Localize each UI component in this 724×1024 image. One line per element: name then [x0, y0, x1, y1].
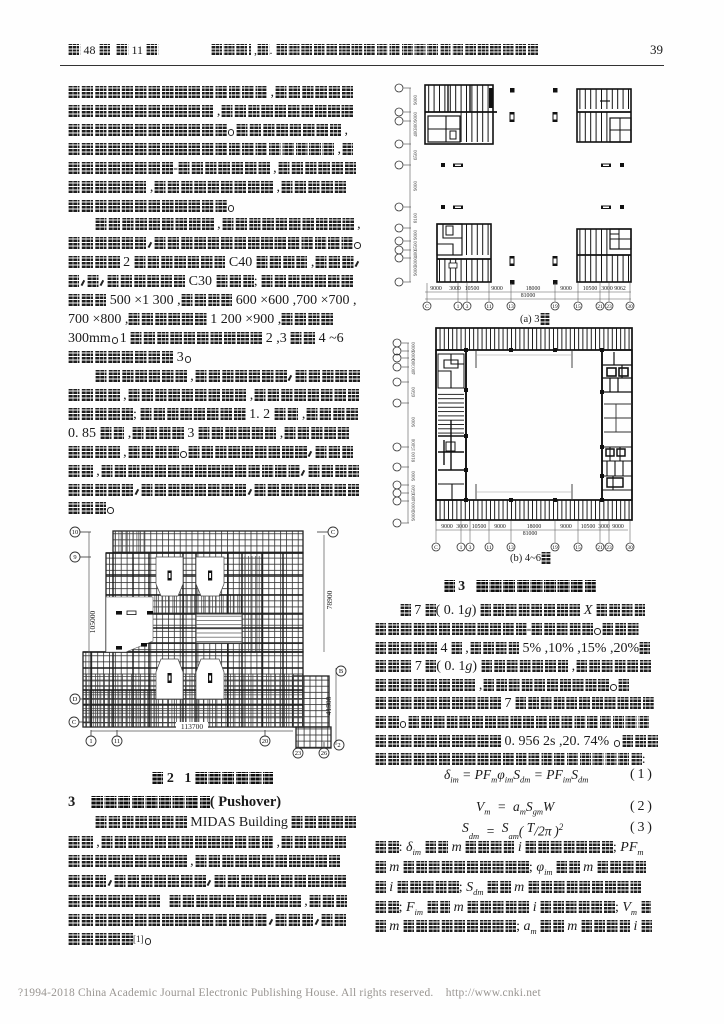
svg-text:21: 21 [597, 545, 603, 551]
svg-text:15: 15 [575, 545, 581, 551]
svg-text:6500: 6500 [414, 241, 419, 252]
svg-text:105000: 105000 [88, 611, 97, 634]
svg-text:9: 9 [73, 554, 76, 561]
svg-text:13: 13 [508, 304, 514, 310]
svg-text:1: 1 [460, 545, 463, 551]
svg-text:6500: 6500 [414, 150, 419, 161]
svg-text:30: 30 [627, 304, 633, 310]
svg-text:6500: 6500 [412, 387, 417, 398]
svg-text:D: D [73, 696, 78, 703]
svg-text:10500: 10500 [583, 286, 598, 292]
svg-text:21: 21 [597, 304, 603, 310]
svg-text:41500: 41500 [324, 696, 333, 715]
svg-text:9000: 9000 [414, 112, 419, 123]
svg-text:81000: 81000 [521, 293, 536, 299]
svg-text:23: 23 [606, 304, 612, 310]
svg-text:15000: 15000 [412, 438, 417, 451]
svg-text:8100: 8100 [414, 213, 419, 224]
svg-text:400: 400 [412, 367, 417, 375]
svg-text:400: 400 [414, 129, 419, 137]
svg-text:B: B [339, 668, 344, 675]
svg-text:C: C [72, 719, 76, 726]
svg-text:23: 23 [606, 545, 612, 551]
svg-text:9000: 9000 [412, 417, 417, 428]
svg-text:400: 400 [414, 250, 419, 258]
svg-text:9000: 9000 [414, 181, 419, 192]
svg-text:8100: 8100 [412, 452, 417, 463]
svg-text:3000: 3000 [414, 257, 419, 268]
svg-text:9000: 9000 [560, 524, 572, 530]
svg-text:10500: 10500 [581, 524, 596, 530]
svg-text:3: 3 [469, 545, 472, 551]
svg-text:3000: 3000 [601, 286, 613, 292]
svg-text:113700: 113700 [181, 722, 203, 731]
svg-text:400: 400 [412, 494, 417, 502]
svg-text:11: 11 [486, 304, 492, 310]
svg-text:9000: 9000 [612, 524, 624, 530]
svg-text:9000: 9000 [414, 230, 419, 241]
svg-text:9000: 9000 [441, 524, 453, 530]
svg-text:10: 10 [72, 529, 79, 536]
svg-text:C: C [331, 529, 335, 536]
svg-text:C: C [425, 304, 429, 310]
svg-text:9000: 9000 [412, 511, 417, 522]
svg-text:9000: 9000 [491, 286, 503, 292]
svg-text:13: 13 [508, 545, 514, 551]
svg-text:300: 300 [414, 122, 419, 130]
svg-text:9000: 9000 [494, 524, 506, 530]
svg-text:11: 11 [486, 545, 492, 551]
svg-text:81000: 81000 [523, 531, 538, 537]
svg-text:6500: 6500 [412, 485, 417, 496]
svg-text:300: 300 [412, 359, 417, 367]
svg-text:3000: 3000 [456, 524, 468, 530]
svg-text:3: 3 [466, 304, 469, 310]
svg-text:9000: 9000 [414, 266, 419, 277]
svg-text:15: 15 [575, 304, 581, 310]
svg-text:2: 2 [337, 742, 340, 749]
svg-text:30: 30 [627, 545, 633, 551]
svg-text:18000: 18000 [526, 286, 541, 292]
svg-text:1: 1 [89, 738, 92, 745]
svg-text:9000: 9000 [414, 95, 419, 106]
svg-text:10500: 10500 [472, 524, 487, 530]
svg-text:3000: 3000 [449, 286, 461, 292]
svg-text:18000: 18000 [527, 524, 542, 530]
svg-text:19: 19 [552, 545, 558, 551]
svg-text:9000: 9000 [560, 286, 572, 292]
svg-text:1: 1 [457, 304, 460, 310]
svg-text:C: C [434, 545, 438, 551]
svg-text:26: 26 [321, 750, 328, 757]
svg-text:9062: 9062 [614, 286, 626, 292]
svg-text:23: 23 [295, 750, 302, 757]
svg-text:3000: 3000 [412, 502, 417, 513]
svg-text:78900: 78900 [325, 590, 334, 609]
svg-text:20: 20 [262, 738, 269, 745]
svg-text:11: 11 [114, 738, 120, 745]
svg-text:9000: 9000 [412, 342, 417, 353]
svg-text:9000: 9000 [412, 471, 417, 482]
svg-text:9000: 9000 [430, 286, 442, 292]
svg-text:19: 19 [552, 304, 558, 310]
